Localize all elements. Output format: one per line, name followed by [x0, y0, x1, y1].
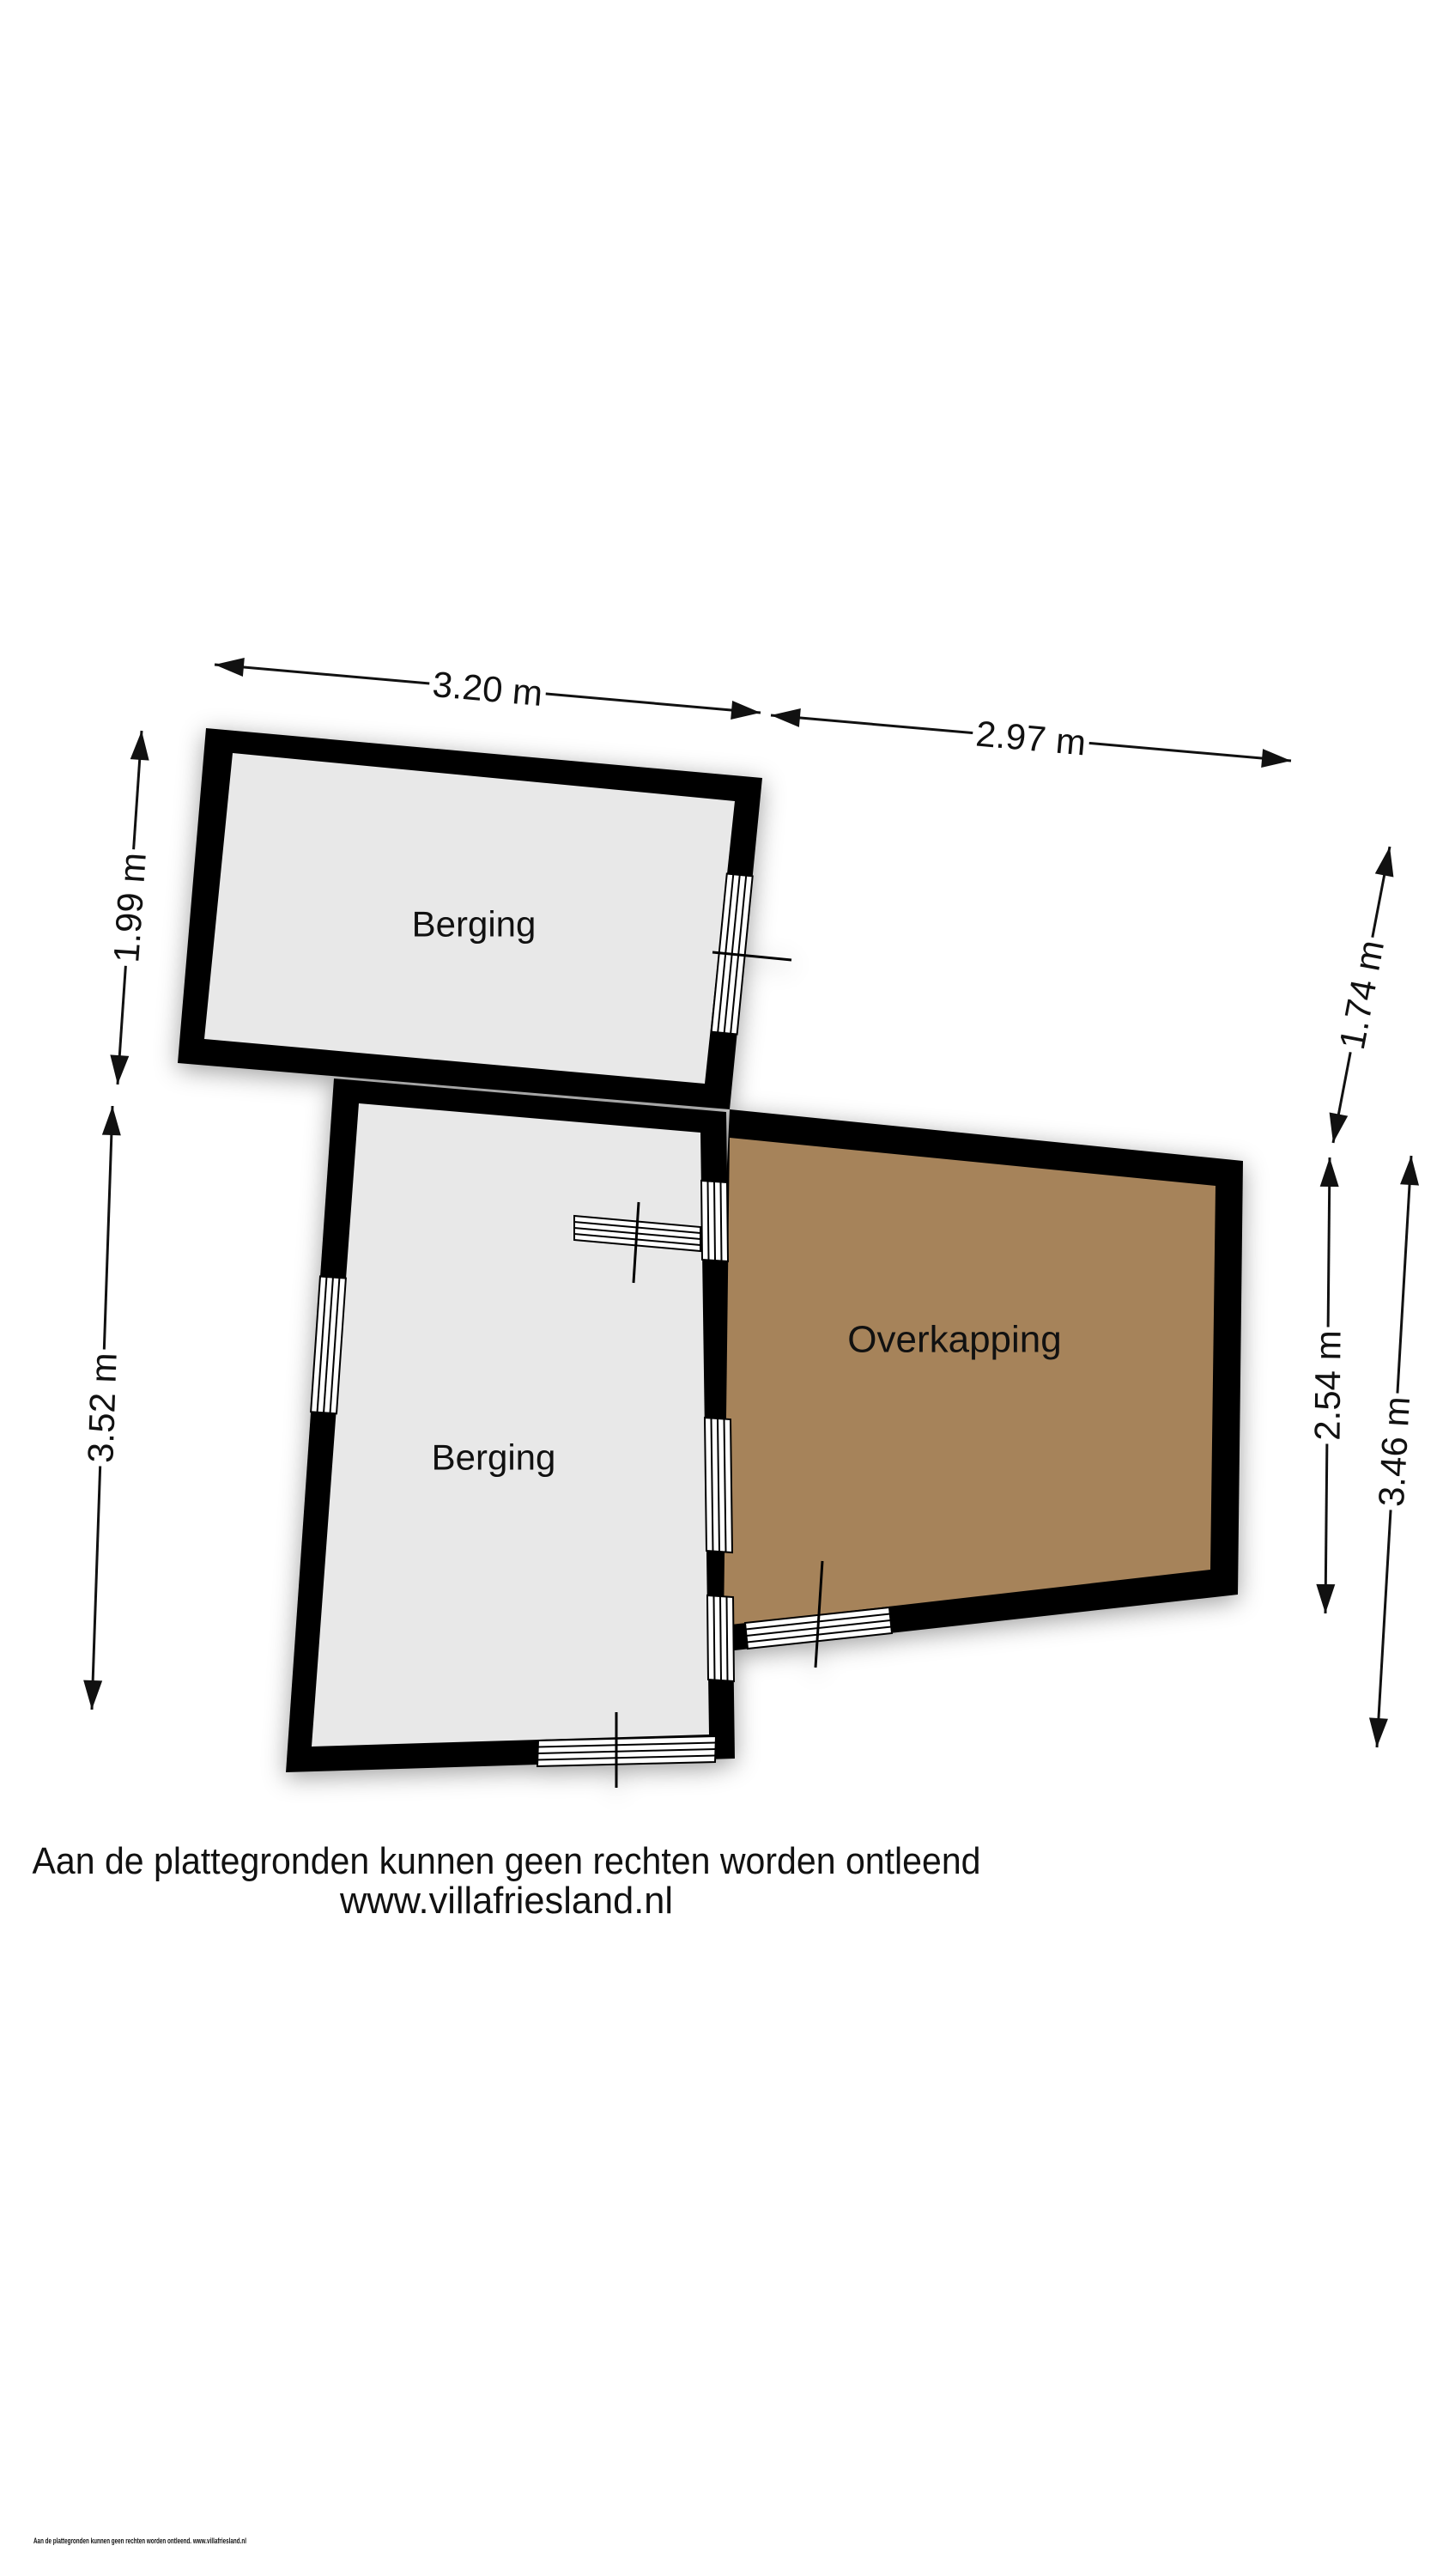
dimension-label: 2.97 m	[974, 713, 1088, 762]
window-hatch-line	[708, 1182, 709, 1261]
window-hatch-line	[721, 1182, 722, 1261]
dimension-label: 3.46 m	[1371, 1395, 1417, 1508]
dimension-dim-right-upper: 1.74 m	[1330, 847, 1394, 1143]
dimension-dim-top-width-right: 2.97 m	[771, 708, 1291, 768]
arrowhead-icon	[215, 658, 245, 677]
arrowhead-icon	[1320, 1157, 1339, 1187]
dimension-label-group: 2.97 m	[971, 713, 1091, 763]
dimension-label-group: 3.52 m	[80, 1349, 124, 1467]
window-icon	[705, 1418, 732, 1552]
disclaimer-line2: www.villafriesland.nl	[339, 1880, 673, 1922]
dimension-label-group: 3.20 m	[427, 664, 548, 714]
arrowhead-icon	[110, 1054, 129, 1084]
dimension-label-group: 1.74 m	[1331, 933, 1392, 1055]
arrowhead-icon	[731, 701, 761, 720]
arrowhead-icon	[1369, 1717, 1388, 1747]
arrowhead-icon	[1375, 847, 1394, 877]
floor-plan	[178, 728, 1243, 1788]
window-hatch-line	[727, 1597, 728, 1681]
dimension-label-group: 2.54 m	[1307, 1327, 1348, 1443]
window-hatch-line	[714, 1182, 715, 1261]
window-icon	[701, 1181, 728, 1261]
window-icon	[707, 1595, 734, 1681]
disclaimer-line1: Aan de plattegronden kunnen geen rechten…	[33, 1840, 981, 1882]
dimension-label: 1.99 m	[106, 851, 154, 963]
floor-plan-page: 3.20 m2.97 m1.99 m3.52 m1.74 m2.54 m3.46…	[0, 0, 1449, 2576]
dimension-label: 3.52 m	[80, 1352, 124, 1464]
window-hatch-line	[720, 1596, 721, 1680]
room-label-berging-lower: Berging	[432, 1437, 556, 1478]
dimension-label-group: 3.46 m	[1371, 1392, 1418, 1510]
window-hatch-line	[714, 1596, 715, 1680]
footer-note: Aan de plattegronden kunnen geen rechten…	[33, 2537, 246, 2546]
arrowhead-icon	[1330, 1113, 1349, 1143]
dimension-dim-right-outer: 3.46 m	[1369, 1156, 1419, 1747]
room-floor-berging-lower	[312, 1103, 709, 1747]
arrowhead-icon	[130, 731, 149, 761]
dimension-dim-top-width-left: 3.20 m	[215, 658, 761, 720]
arrowhead-icon	[1316, 1584, 1335, 1613]
room-floor-overkapping	[724, 1138, 1216, 1625]
dimension-dim-left-upper: 1.99 m	[106, 731, 154, 1084]
dimension-label: 3.20 m	[431, 664, 544, 714]
dimension-label-group: 1.99 m	[106, 848, 154, 968]
dimension-label: 1.74 m	[1331, 937, 1391, 1053]
arrowhead-icon	[1400, 1156, 1419, 1186]
window-icon	[537, 1736, 716, 1766]
room-label-berging-upper: Berging	[412, 904, 537, 945]
arrowhead-icon	[102, 1106, 121, 1135]
dimension-dim-left-lower: 3.52 m	[80, 1106, 124, 1710]
arrowhead-icon	[1261, 749, 1291, 768]
dimension-dim-right-overkapping: 2.54 m	[1307, 1157, 1348, 1613]
dimension-label: 2.54 m	[1307, 1330, 1348, 1441]
floor-plan-svg: 3.20 m2.97 m1.99 m3.52 m1.74 m2.54 m3.46…	[0, 0, 1449, 2576]
arrowhead-icon	[83, 1680, 102, 1710]
room-label-overkapping: Overkapping	[847, 1319, 1061, 1361]
arrowhead-icon	[771, 708, 801, 727]
